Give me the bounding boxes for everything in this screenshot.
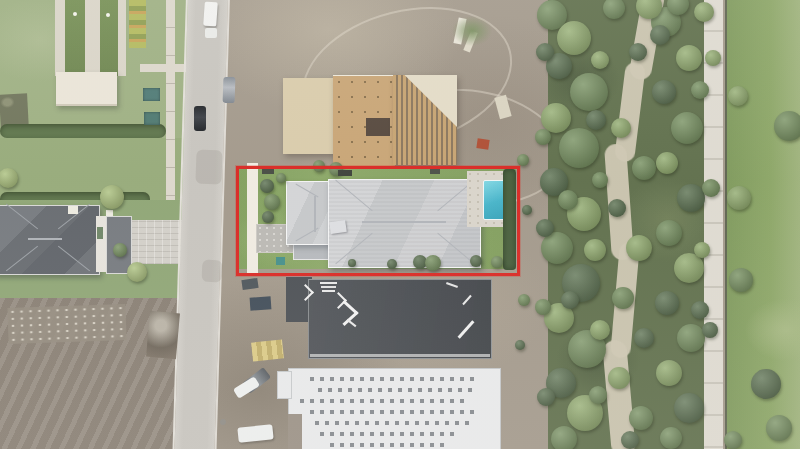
flag-marker-1 [73,12,77,16]
grass-patch [452,16,492,46]
car-white [205,28,217,38]
ridge-cap-marking [321,286,336,288]
dumpster [250,296,272,310]
car-silver [223,77,236,103]
ridge-cap-marking [320,282,337,284]
car-white-2 [233,376,260,399]
manhole-cover [220,419,226,425]
debris-pile [146,311,180,359]
ridge-cap-marking [462,295,472,305]
equipment-bin [241,278,258,290]
property-boundary-annotation [236,166,520,276]
car-black [194,106,206,131]
box-truck-white [203,2,218,27]
ridge-cap-marking [458,320,475,338]
ridge-cap-marking [322,290,335,292]
ridge-cap-marking [446,282,458,288]
utility-box-2 [144,112,160,125]
lumber-stack-yellow [251,339,284,361]
van-white [237,424,273,443]
machine-orange [476,138,489,150]
ridge-cap-marking [304,291,314,301]
aerial-photo-canvas [0,0,800,449]
utility-box-1 [143,88,160,101]
ridge-cap-marking [347,319,357,327]
flag-marker-2 [106,13,110,17]
lumber-pile-east [494,95,511,119]
